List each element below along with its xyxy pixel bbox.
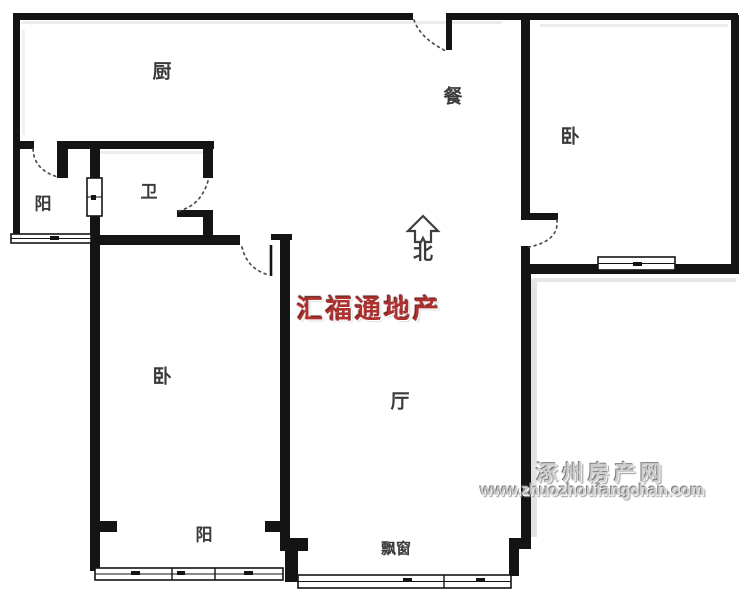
room-label-kitchen: 厨 bbox=[152, 63, 171, 82]
room-label-dining: 餐 bbox=[443, 88, 462, 107]
room-label-bay-window: 飘窗 bbox=[381, 542, 411, 557]
north-label: 北 bbox=[413, 243, 433, 263]
west-balcony-door-arc bbox=[33, 149, 58, 177]
bedroom-door-arc bbox=[242, 247, 269, 275]
north-arrow-icon bbox=[408, 216, 438, 242]
room-label-bedroom-bottom-left: 卧 bbox=[152, 368, 171, 387]
room-label-balcony-south: 阳 bbox=[196, 527, 213, 544]
bathroom-door-arc bbox=[179, 181, 208, 211]
watermark-agency: 汇福通地产 bbox=[297, 289, 442, 326]
room-label-bathroom: 卫 bbox=[141, 184, 158, 201]
window-bay bbox=[298, 575, 511, 588]
balcony-door-panel bbox=[87, 178, 102, 216]
window-south-balcony bbox=[95, 568, 283, 580]
room-label-living-room: 厅 bbox=[390, 393, 409, 412]
entry-door-arc bbox=[414, 20, 446, 51]
window-west-balcony bbox=[11, 234, 91, 243]
window-bedroom-tr bbox=[598, 257, 675, 270]
room-label-balcony-west: 阳 bbox=[35, 196, 52, 213]
floor-plan: 厨 餐 卧 阳 卫 卧 厅 阳 飘窗 北 汇福通地产 涿州房产网 www.zhu… bbox=[0, 0, 752, 600]
dining-door-arc bbox=[529, 220, 557, 247]
room-label-bedroom-top-right: 卧 bbox=[560, 128, 579, 147]
watermark-site-url: www.zhuozhoufangchan.com bbox=[480, 482, 704, 500]
